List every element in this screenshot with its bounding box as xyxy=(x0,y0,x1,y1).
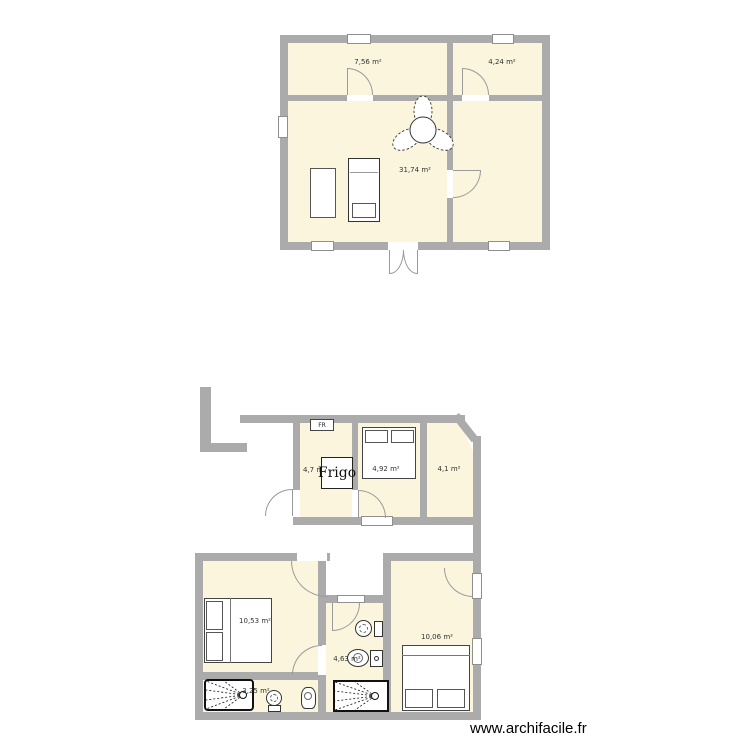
door-opening xyxy=(293,490,300,517)
shower-spray-lines xyxy=(206,681,252,709)
door-swing-arc xyxy=(390,250,404,274)
room-area-label: 7,56 m² xyxy=(354,58,381,66)
window[interactable] xyxy=(472,638,482,665)
wall-segment xyxy=(195,712,481,720)
toilet-seat xyxy=(359,624,368,633)
window[interactable] xyxy=(311,241,334,251)
toilet-tank xyxy=(374,621,383,637)
room-area-label: 10,53 m² xyxy=(239,617,271,625)
wardrobe-line xyxy=(350,172,378,173)
window[interactable] xyxy=(278,116,288,138)
appliance-box[interactable]: FR xyxy=(310,419,334,431)
sink-bowl xyxy=(304,692,312,700)
pillow-icon xyxy=(391,430,414,443)
wall-segment xyxy=(542,35,550,250)
wall-segment xyxy=(195,553,203,720)
fridge-box[interactable]: Frigo xyxy=(321,457,353,489)
door-opening xyxy=(347,95,373,101)
wall-segment xyxy=(293,423,300,490)
room-area-label: 4,1 m² xyxy=(438,465,461,473)
bed-line xyxy=(402,655,470,656)
wardrobe-drawer xyxy=(352,203,376,218)
wall-segment xyxy=(240,415,465,423)
door-leaf[interactable] xyxy=(292,489,293,516)
window[interactable] xyxy=(472,573,482,599)
floor-plan-canvas: 7,56 m² 4,24 m² 31,74 m² xyxy=(0,0,750,750)
wall-segment xyxy=(200,387,211,450)
fan-icon[interactable] xyxy=(390,94,456,166)
room-area-label: 3,25 m² xyxy=(242,687,269,695)
wall-segment xyxy=(420,423,427,517)
room-area-label: 31,74 m² xyxy=(399,166,431,174)
window[interactable] xyxy=(492,34,514,44)
wall-segment xyxy=(383,553,481,561)
door-leaf[interactable] xyxy=(417,250,418,274)
door-opening xyxy=(462,95,489,101)
shower-spray-lines xyxy=(335,682,387,710)
wall-segment xyxy=(447,43,453,95)
door-opening xyxy=(388,242,418,250)
toilet-tank xyxy=(268,705,281,712)
table-icon[interactable] xyxy=(310,168,336,218)
room-area-label: 4,92 m² xyxy=(372,465,399,473)
pillow-icon xyxy=(206,632,223,661)
bed-line xyxy=(230,598,231,663)
watermark: www.archifacile.fr xyxy=(470,720,587,737)
pillow-icon xyxy=(206,601,223,630)
pillow-icon xyxy=(365,430,388,443)
window[interactable] xyxy=(337,595,365,603)
room-area-label: 4,24 m² xyxy=(488,58,515,66)
room-area-label: 10,06 m² xyxy=(421,633,453,641)
toilet-seat xyxy=(270,694,278,702)
room-area-label: 4,63 m² xyxy=(333,655,360,663)
wall-segment xyxy=(200,443,247,452)
water-heater-dot xyxy=(374,656,379,661)
door-opening xyxy=(297,553,327,561)
window[interactable] xyxy=(488,241,510,251)
pillow-icon xyxy=(437,689,465,708)
window[interactable] xyxy=(347,34,371,44)
pillow-icon xyxy=(405,689,433,708)
door-swing-arc xyxy=(265,489,292,516)
wall-segment xyxy=(280,35,288,250)
door-swing-arc xyxy=(403,250,417,274)
